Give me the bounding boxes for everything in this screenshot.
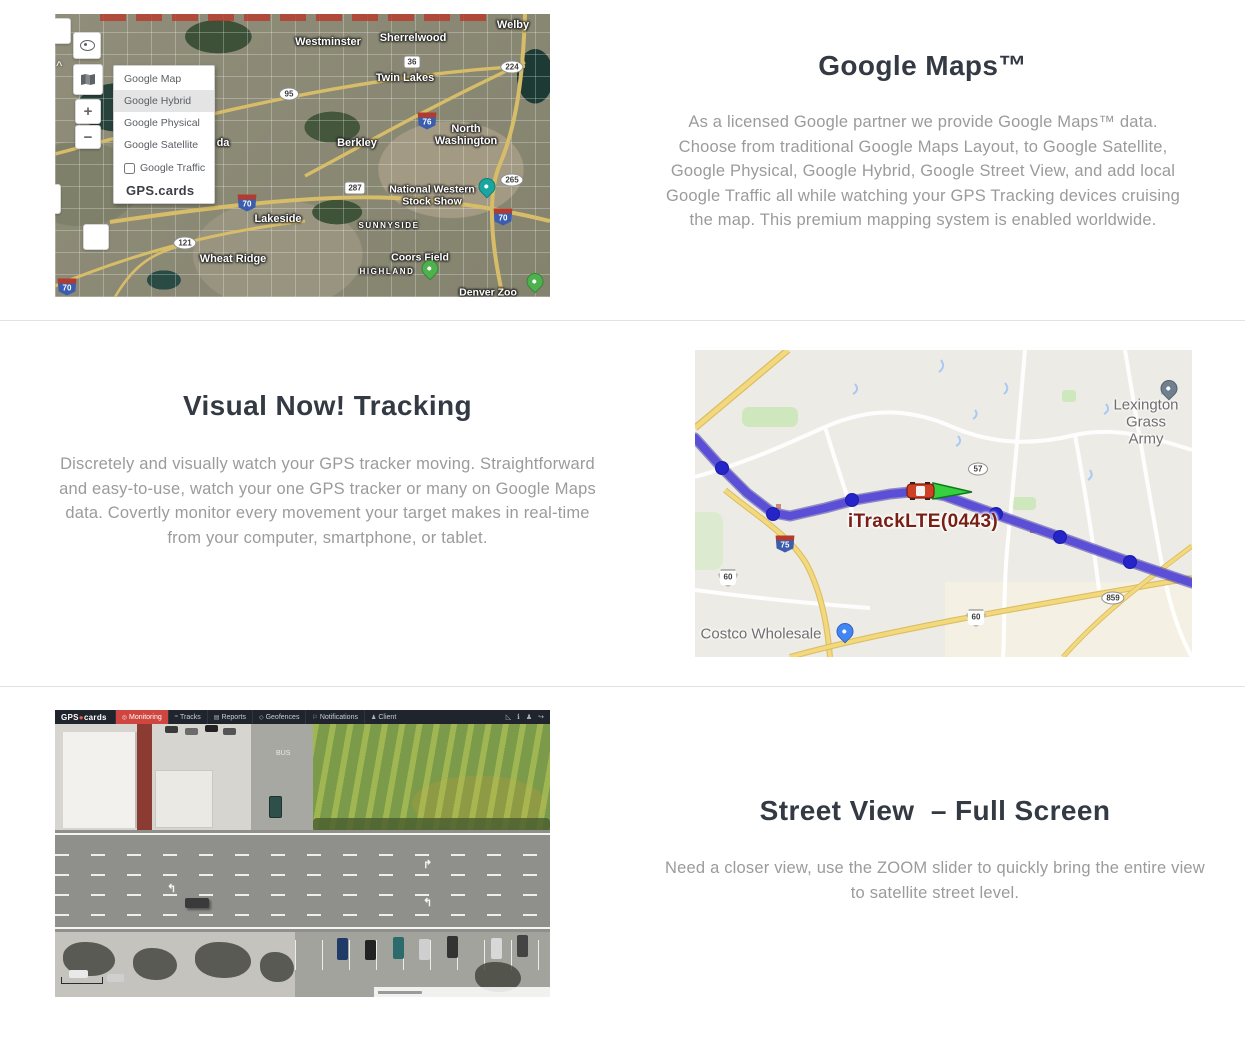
google-maps-title: Google Maps™ bbox=[650, 50, 1195, 82]
street-view-body: Need a closer view, use the ZOOM slider … bbox=[665, 856, 1205, 905]
place-label: Berkley bbox=[337, 137, 377, 149]
section-divider bbox=[0, 686, 1245, 687]
notification-icon: ⚐ bbox=[312, 714, 317, 721]
place-label: Coors Field bbox=[391, 252, 449, 264]
tab-label: Tracks bbox=[180, 714, 201, 721]
tree-shadow bbox=[260, 952, 294, 982]
parked-car bbox=[517, 935, 528, 957]
traffic-option[interactable]: Google Traffic bbox=[114, 156, 214, 179]
route-shield: 95 bbox=[279, 88, 299, 101]
panel-brand: GPS.cards bbox=[114, 179, 214, 201]
layer-option[interactable]: Google Physical bbox=[114, 112, 214, 134]
aerial-street-image: BUS ↰ ↱ ↰ bbox=[55, 724, 550, 997]
tab-label: Client bbox=[378, 714, 396, 721]
ruler-icon[interactable]: ◺ bbox=[506, 713, 511, 721]
route-shield: 287 bbox=[344, 182, 365, 195]
parked-car bbox=[419, 939, 430, 960]
parked-car bbox=[365, 940, 376, 960]
cutoff-control-box bbox=[83, 224, 109, 250]
route-shield: 60 bbox=[967, 610, 986, 627]
tracker-name-label: iTrackLTE(0443) bbox=[848, 511, 998, 533]
toolbar-tab-monitoring[interactable]: ◎Monitoring bbox=[115, 710, 168, 724]
visibility-button[interactable] bbox=[73, 32, 101, 59]
client-icon: ♟ bbox=[371, 714, 376, 721]
tab-label: Reports bbox=[221, 714, 246, 721]
toolbar-tab-client[interactable]: ♟Client bbox=[364, 710, 402, 724]
cutoff-control-box bbox=[55, 18, 71, 44]
place-label: HIGHLAND bbox=[359, 266, 414, 278]
layer-option[interactable]: Google Map bbox=[114, 68, 214, 90]
tracking-road-map[interactable]: Lexington Grass ArmyCostco Wholesale 577… bbox=[695, 350, 1192, 657]
layer-option[interactable]: Google Satellite bbox=[114, 134, 214, 156]
google-maps-body: As a licensed Google partner we provide … bbox=[662, 110, 1184, 233]
driveway bbox=[251, 724, 313, 832]
street-view-screenshot[interactable]: GPS●cards ◎Monitoring≈Tracks▤Reports◇Geo… bbox=[55, 710, 550, 997]
cutoff-control-box bbox=[55, 184, 61, 214]
grass-field bbox=[313, 724, 550, 830]
place-label: Sherrelwood bbox=[380, 32, 447, 44]
toolbar-tabs: ◎Monitoring≈Tracks▤Reports◇Geofences⚐Not… bbox=[115, 710, 402, 724]
place-label: North Washington bbox=[435, 123, 498, 147]
place-label: Denver Zoo bbox=[459, 287, 517, 297]
parked-car bbox=[205, 725, 218, 732]
place-label: Wheat Ridge bbox=[200, 253, 267, 265]
parked-car bbox=[107, 974, 124, 982]
place-label: SUNNYSIDE bbox=[358, 220, 419, 232]
map-attribution bbox=[374, 987, 550, 997]
report-icon: ▤ bbox=[214, 714, 220, 721]
tree-shadow bbox=[133, 948, 177, 980]
building-roof-strip bbox=[137, 724, 152, 830]
toolbar-right-icons: ◺ℹ♟↪ bbox=[506, 713, 550, 721]
traffic-label: Google Traffic bbox=[140, 162, 205, 174]
zoom-out-button[interactable]: − bbox=[75, 125, 101, 149]
street-view-title: Street View – Full Screen bbox=[645, 795, 1225, 827]
toolbar-tab-tracks[interactable]: ≈Tracks bbox=[168, 710, 207, 724]
map-layers-panel: Google MapGoogle HybridGoogle PhysicalGo… bbox=[113, 65, 215, 204]
chevron-up-icon: ^ bbox=[56, 60, 62, 72]
toolbar-tab-notifications[interactable]: ⚐Notifications bbox=[305, 710, 364, 724]
building-roof bbox=[63, 732, 137, 828]
parked-car bbox=[447, 936, 458, 958]
place-label: da bbox=[217, 137, 230, 149]
features-page: WestminsterSherrelwoodWelbyTwin LakesNor… bbox=[0, 0, 1245, 1037]
tracks-icon: ≈ bbox=[175, 714, 178, 720]
place-label: Welby bbox=[497, 19, 529, 31]
parked-car bbox=[393, 937, 404, 959]
place-label: Twin Lakes bbox=[376, 72, 434, 84]
map-layers-icon bbox=[81, 74, 95, 85]
tab-label: Notifications bbox=[320, 714, 358, 721]
place-label: National Western Stock Show bbox=[389, 185, 475, 208]
eye-icon bbox=[80, 40, 95, 51]
building-roof bbox=[155, 770, 213, 828]
layer-options: Google MapGoogle HybridGoogle PhysicalGo… bbox=[114, 68, 214, 156]
map-scale-bar bbox=[61, 976, 103, 984]
parked-car bbox=[223, 728, 236, 735]
turn-arrow-marking: ↰ bbox=[167, 882, 176, 895]
logout-icon[interactable]: ↪ bbox=[538, 713, 544, 721]
traffic-checkbox[interactable] bbox=[124, 163, 135, 174]
place-label: Lexington Grass Army bbox=[1113, 397, 1178, 448]
tab-label: Geofences bbox=[266, 714, 300, 721]
main-road: ↰ ↱ ↰ bbox=[55, 830, 550, 932]
tree-shadow bbox=[195, 942, 251, 978]
toolbar-tab-reports[interactable]: ▤Reports bbox=[207, 710, 252, 724]
route-shield: 57 bbox=[968, 463, 988, 476]
layers-button[interactable] bbox=[73, 64, 103, 95]
place-label: Lakeside bbox=[254, 213, 301, 225]
turn-arrow-marking: ↰ bbox=[423, 896, 432, 909]
monitor-icon: ◎ bbox=[122, 714, 127, 721]
road-marking: BUS bbox=[276, 750, 288, 766]
app-brand-logo: GPS●cards bbox=[55, 713, 115, 722]
zoom-in-button[interactable]: + bbox=[75, 99, 101, 124]
parked-car bbox=[165, 726, 178, 733]
toolbar-tab-geofences[interactable]: ◇Geofences bbox=[252, 710, 305, 724]
layer-option[interactable]: Google Hybrid bbox=[114, 90, 214, 112]
parked-car bbox=[185, 728, 198, 735]
place-label: Westminster bbox=[295, 36, 361, 48]
visual-tracking-body: Discretely and visually watch your GPS t… bbox=[50, 452, 605, 550]
turn-arrow-marking: ↱ bbox=[423, 858, 432, 871]
place-label: Costco Wholesale bbox=[701, 626, 822, 643]
car-on-road bbox=[185, 898, 209, 908]
app-toolbar: GPS●cards ◎Monitoring≈Tracks▤Reports◇Geo… bbox=[55, 710, 550, 724]
geofence-icon: ◇ bbox=[259, 714, 264, 721]
user-icon[interactable]: ♟ bbox=[526, 713, 532, 721]
tab-label: Monitoring bbox=[129, 714, 162, 721]
google-maps-satellite-map[interactable]: WestminsterSherrelwoodWelbyTwin LakesNor… bbox=[55, 14, 550, 297]
visual-tracking-title: Visual Now! Tracking bbox=[45, 390, 610, 422]
section-divider bbox=[0, 320, 1245, 321]
parked-car bbox=[337, 938, 348, 960]
car-on-driveway bbox=[269, 796, 282, 818]
parked-car bbox=[491, 938, 502, 959]
route-shield: 60 bbox=[719, 570, 738, 587]
info-icon[interactable]: ℹ bbox=[517, 713, 520, 721]
route-shield: 36 bbox=[404, 56, 421, 69]
